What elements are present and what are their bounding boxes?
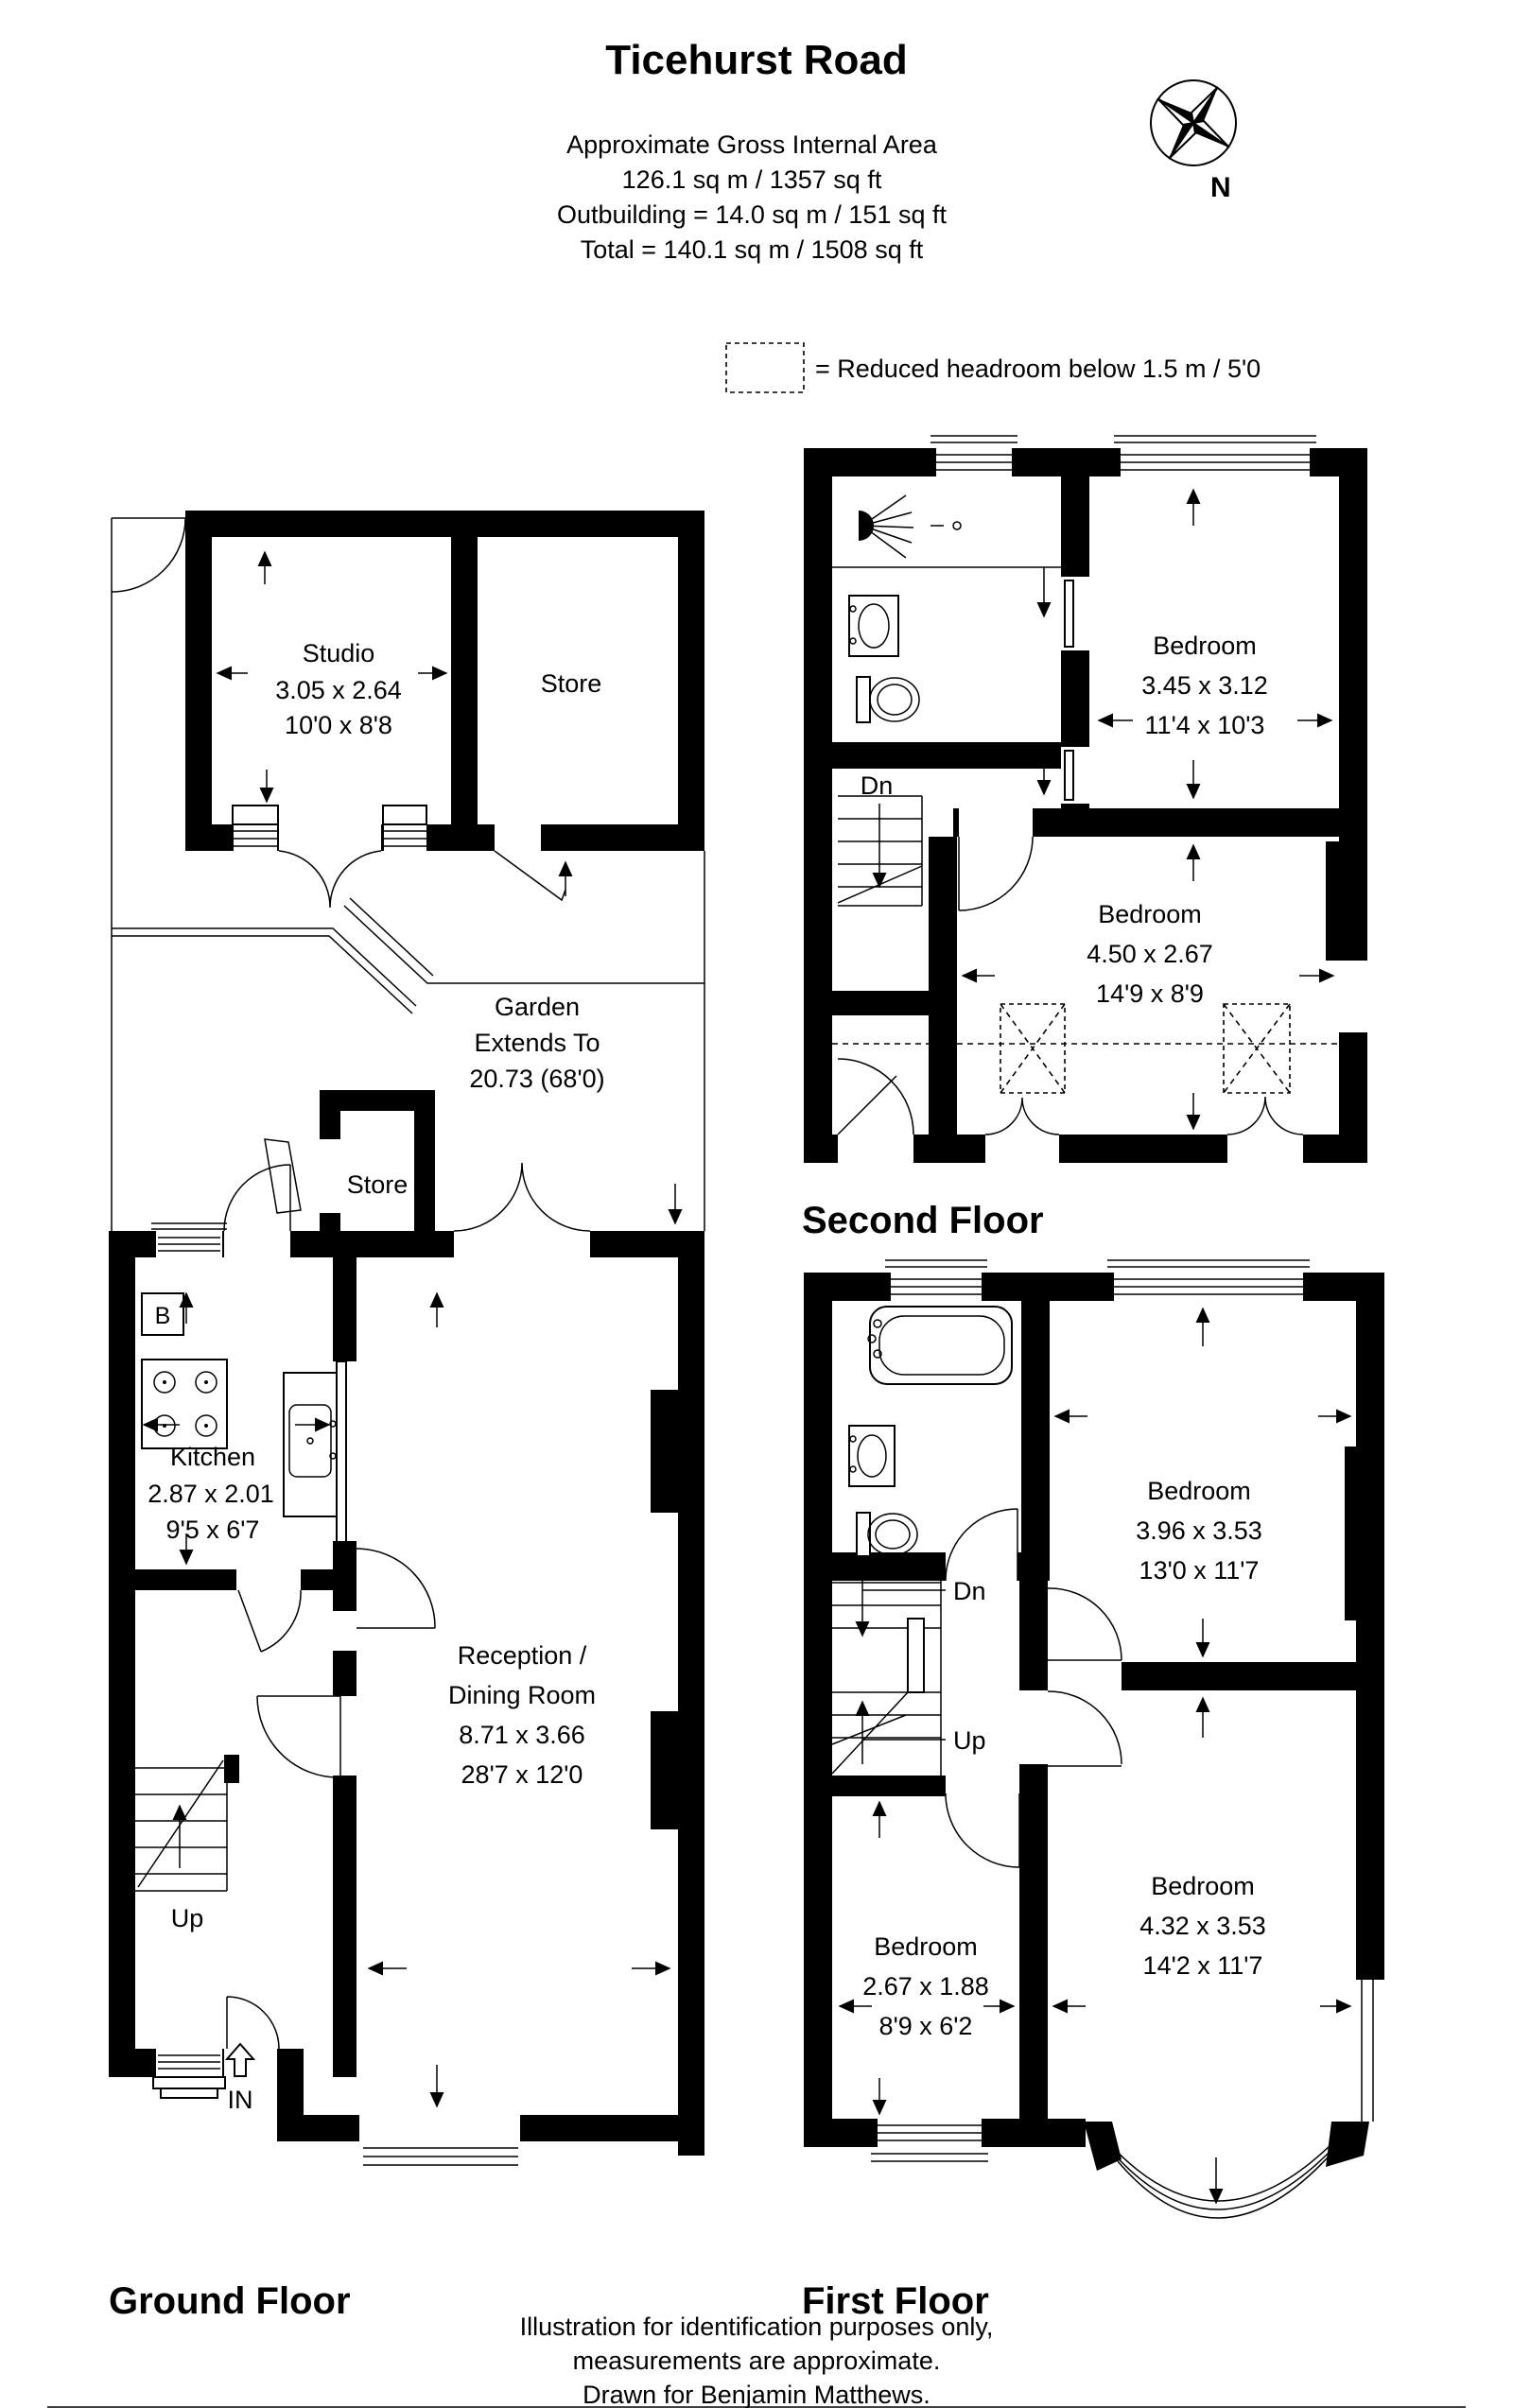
- floorplan-drawing: Ticehurst Road Approximate Gross Interna…: [0, 0, 1513, 2408]
- footer-line-1: Illustration for identification purposes…: [520, 2313, 994, 2341]
- bath-icon: [868, 1307, 1012, 1384]
- first-bedroom-large-name: Bedroom: [1151, 1872, 1255, 1900]
- reception-metric: 8.71 x 3.66: [459, 1721, 585, 1749]
- area-line-4: Total = 140.1 sq m / 1508 sq ft: [581, 235, 924, 264]
- second-stairs: [838, 796, 922, 906]
- first-bedroom-large-imperial: 14'2 x 11'7: [1143, 1951, 1263, 1980]
- first-stairs: [832, 1552, 946, 1776]
- second-floor-label: Second Floor: [802, 1200, 1044, 1241]
- first-bedroom-large-metric: 4.32 x 3.53: [1139, 1912, 1266, 1940]
- header: Ticehurst Road Approximate Gross Interna…: [557, 37, 947, 264]
- garden-line-2: Extends To: [474, 1029, 600, 1057]
- entrance-label: IN: [228, 2086, 253, 2114]
- compass-icon: N: [1151, 80, 1236, 203]
- reception-imperial: 28'7 x 12'0: [461, 1760, 583, 1789]
- ground-floor-label: Ground Floor: [109, 2280, 351, 2322]
- first-bedroom-rear-imperial: 13'0 x 11'7: [1139, 1556, 1260, 1585]
- bay-window: [1048, 1980, 1373, 2218]
- compass-north-label: N: [1210, 172, 1231, 203]
- ground-floor-plan: Store IN: [109, 1090, 704, 2165]
- shower-icon: [832, 495, 1061, 567]
- ground-store-name: Store: [347, 1170, 409, 1199]
- reduced-headroom-zone: [1000, 1004, 1290, 1093]
- first-dn-label: Dn: [953, 1577, 986, 1605]
- kitchen-sink-icon: [284, 1373, 337, 1516]
- second-bedroom-rear-imperial: 11'4 x 10'3: [1145, 711, 1265, 739]
- second-bedroom-rear-name: Bedroom: [1153, 632, 1257, 660]
- outbuilding-store-name: Store: [541, 669, 602, 698]
- kitchen-metric: 2.87 x 2.01: [148, 1480, 274, 1508]
- legend: = Reduced headroom below 1.5 m / 5'0: [726, 343, 1261, 392]
- second-bathroom-sink-icon: [849, 596, 898, 656]
- kitchen-imperial: 9'5 x 6'7: [166, 1516, 260, 1544]
- legend-label: = Reduced headroom below 1.5 m / 5'0: [815, 355, 1261, 383]
- first-bedroom-small-imperial: 8'9 x 6'2: [879, 2012, 973, 2040]
- second-bedroom-rear-metric: 3.45 x 3.12: [1141, 671, 1268, 700]
- ground-up-label: Up: [171, 1904, 204, 1932]
- boiler-label: B: [155, 1303, 171, 1329]
- garden-line-1: Garden: [495, 993, 580, 1021]
- first-bedroom-rear-metric: 3.96 x 3.53: [1136, 1516, 1262, 1545]
- footer: Illustration for identification purposes…: [47, 2313, 1466, 2408]
- kitchen-name: Kitchen: [170, 1443, 255, 1471]
- page-title: Ticehurst Road: [605, 37, 907, 83]
- second-toilet-icon: [857, 677, 919, 722]
- reception-name-1: Reception /: [458, 1641, 587, 1670]
- studio-name: Studio: [303, 639, 375, 667]
- garden-gate-arc: [112, 518, 185, 592]
- first-bedroom-small-metric: 2.67 x 1.88: [862, 1972, 989, 2001]
- reduced-headroom-swatch: [726, 343, 804, 392]
- garden-line-3: 20.73 (68'0): [469, 1065, 604, 1093]
- first-bedroom-small-name: Bedroom: [874, 1932, 978, 1961]
- first-bathroom-sink-icon: [849, 1426, 895, 1486]
- store-door-leaf: [265, 1139, 301, 1213]
- studio-metric: 3.05 x 2.64: [275, 676, 402, 704]
- second-bedroom-front-metric: 4.50 x 2.67: [1087, 940, 1213, 968]
- area-line-2: 126.1 sq m / 1357 sq ft: [622, 165, 882, 194]
- second-bedroom-front-imperial: 14'9 x 8'9: [1096, 979, 1204, 1008]
- floorplan-page: Ticehurst Road Approximate Gross Interna…: [0, 0, 1513, 2408]
- first-toilet-icon: [857, 1513, 917, 1556]
- area-line-3: Outbuilding = 14.0 sq m / 151 sq ft: [557, 200, 947, 229]
- second-bedroom-front-name: Bedroom: [1098, 900, 1202, 928]
- second-floor-plan: Dn Bedroom 3.45 x 3.12: [804, 436, 1367, 1163]
- studio-imperial: 10'0 x 8'8: [285, 711, 392, 739]
- second-dn-label: Dn: [861, 771, 894, 800]
- outbuilding-plan: Studio 3.05 x 2.64 10'0 x 8'8 Store: [185, 511, 704, 908]
- footer-line-2: measurements are approximate.: [573, 2347, 941, 2375]
- hob-icon: [142, 1360, 227, 1448]
- reception-name-2: Dining Room: [448, 1681, 596, 1709]
- area-line-1: Approximate Gross Internal Area: [566, 130, 938, 159]
- first-bedroom-rear-name: Bedroom: [1147, 1477, 1251, 1505]
- first-floor-plan: Dn Up Bedroom 3.96 x 3.53 13'0 x 1: [804, 1260, 1384, 2218]
- first-up-label: Up: [953, 1726, 986, 1755]
- footer-line-3: Drawn for Benjamin Matthews.: [583, 2381, 930, 2408]
- ground-stairs: [135, 1755, 239, 1891]
